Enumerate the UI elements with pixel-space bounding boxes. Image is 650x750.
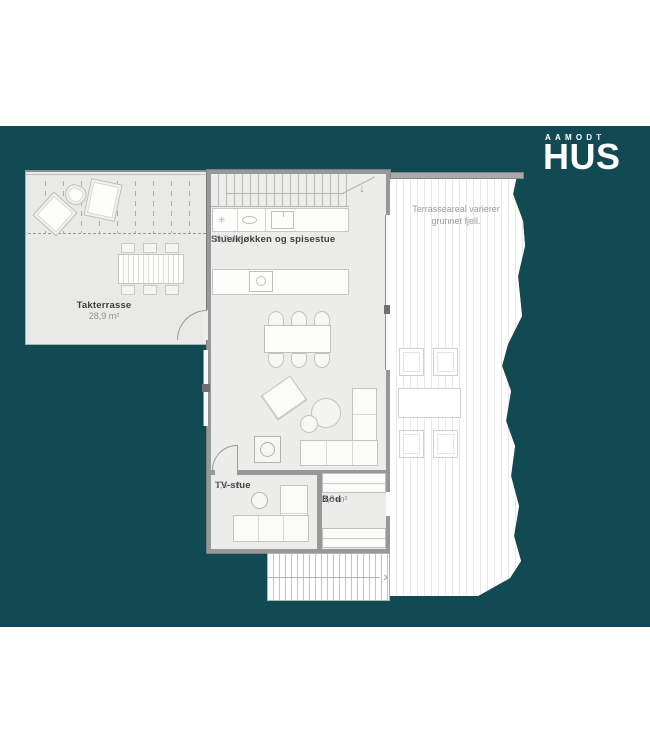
aamodt-hus-logo: AAMODT HUS	[543, 133, 623, 171]
dining-chair	[314, 311, 330, 326]
staircase-divider	[226, 193, 344, 194]
terrace-dining-table	[118, 254, 184, 284]
coffee-table	[300, 415, 318, 433]
outdoor-chair	[433, 348, 458, 376]
tv-room-sofa	[233, 515, 309, 542]
wood-stove	[254, 436, 281, 463]
room-area: 4,8 m²	[322, 494, 348, 504]
kitchen-counter: ✳	[212, 208, 349, 232]
counter-divider	[237, 209, 238, 231]
house-outline: ↓ ✳ Stue/kjøkken og spisestue 50,3 m²	[207, 170, 390, 553]
outdoor-chair	[399, 348, 424, 376]
room-name: Takterrasse	[25, 300, 183, 311]
tv-room-side-table	[251, 492, 268, 509]
outdoor-chair	[433, 430, 458, 458]
outdoor-chair	[399, 430, 424, 458]
room-area: 7,4 m²	[215, 480, 241, 490]
terrace-note-line1: Terrasseareal varierer	[395, 203, 517, 215]
dining-table	[264, 325, 331, 353]
room-area: 50,3 m²	[211, 234, 242, 244]
roof-terrace-label: Takterrasse 28,9 m²	[25, 300, 183, 321]
sink-icon	[242, 216, 257, 224]
floorplan-page: AAMODT HUS Takterrasse 28,9 m² ↓ ✳	[0, 0, 650, 750]
terrace-chair	[165, 243, 179, 253]
stair-right-arrow-icon: ›	[383, 568, 388, 584]
terrace-decking	[390, 176, 525, 596]
terrace-chair	[121, 243, 135, 253]
interior-wall	[211, 470, 215, 475]
logo-word-hus: HUS	[543, 143, 623, 171]
burner-icon: ✳	[218, 215, 226, 226]
dining-chair	[291, 311, 307, 326]
terrace-chair	[143, 285, 157, 295]
room-area: 28,9 m²	[25, 311, 183, 321]
dining-chair	[314, 353, 330, 368]
terrace-note-line2: grunnet fjell.	[395, 215, 517, 227]
sofa	[300, 440, 378, 466]
terrace-chair	[165, 285, 179, 295]
counter-divider	[265, 209, 266, 231]
island-sink-icon	[249, 271, 273, 292]
terrace-note: Terrasseareal varierer grunnet fjell.	[395, 203, 517, 227]
interior-staircase	[211, 174, 349, 207]
storage-shelf	[322, 473, 386, 493]
armchair	[261, 375, 308, 420]
dining-chair	[268, 311, 284, 326]
storage-shelf	[322, 528, 386, 548]
window-mullion	[202, 384, 210, 392]
tv-room-door-arc	[212, 445, 237, 470]
cooktop-icon	[271, 211, 294, 229]
kitchen-island	[212, 269, 349, 295]
terrace-chair	[121, 285, 135, 295]
exterior-staircase: ›	[267, 553, 390, 601]
dining-chair	[291, 353, 307, 368]
tv-room-door-leaf	[237, 445, 238, 470]
outdoor-table	[398, 388, 461, 418]
dining-chair	[268, 353, 284, 368]
terrace-chair	[143, 243, 157, 253]
staircase-center-line	[268, 577, 380, 578]
terrace-edge-wall	[390, 172, 524, 179]
terrace-railing	[26, 174, 207, 175]
stair-down-arrow-icon: ↓	[359, 181, 365, 195]
